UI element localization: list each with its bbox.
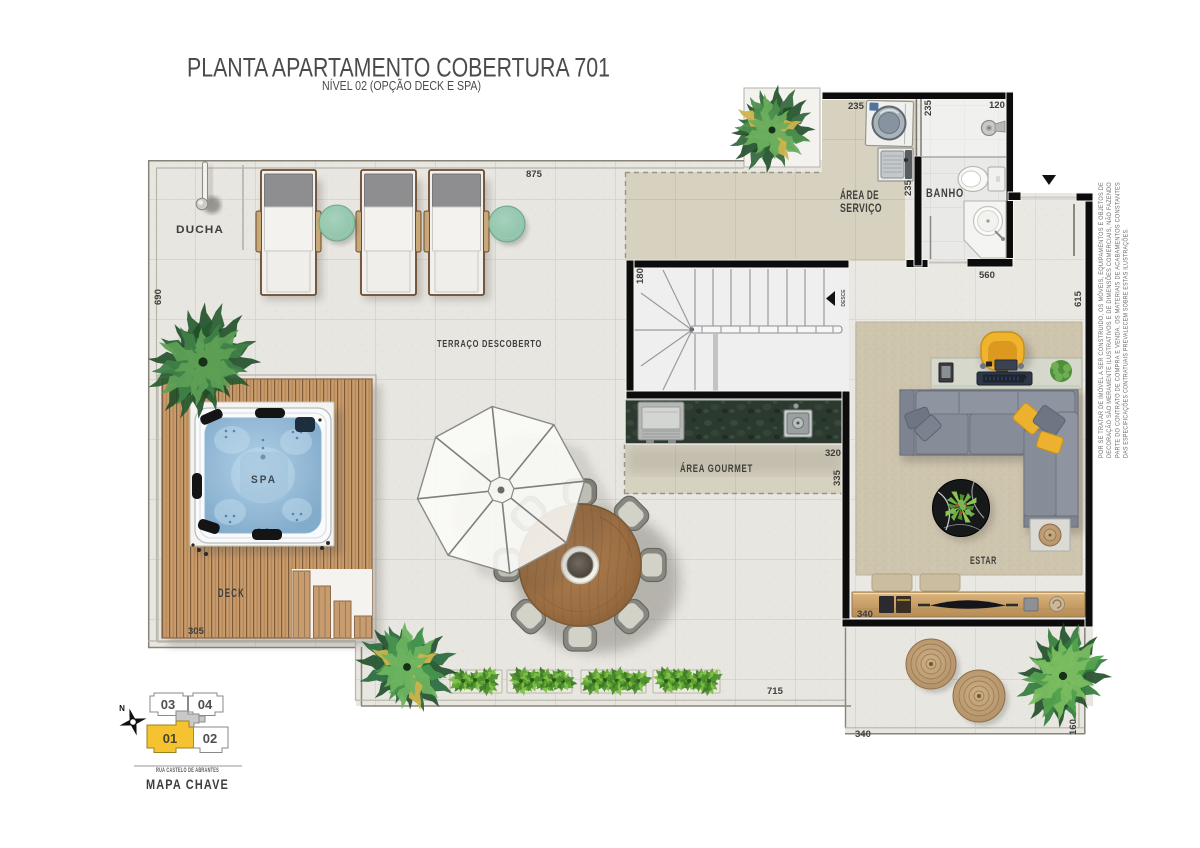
svg-text:03: 03: [161, 697, 175, 712]
svg-text:SERVIÇO: SERVIÇO: [840, 203, 882, 215]
svg-text:235: 235: [848, 101, 865, 112]
svg-text:560: 560: [979, 270, 995, 281]
svg-text:160: 160: [1068, 719, 1079, 735]
svg-text:690: 690: [153, 289, 164, 305]
svg-text:DECORAÇÃO SÃO MERAMENTE ILUSTR: DECORAÇÃO SÃO MERAMENTE ILUSTRATIVOS E D…: [1104, 182, 1113, 458]
svg-text:305: 305: [188, 626, 205, 637]
svg-text:320: 320: [825, 448, 841, 459]
svg-text:TERRAÇO DESCOBERTO: TERRAÇO DESCOBERTO: [437, 338, 542, 350]
svg-text:340: 340: [855, 729, 871, 740]
svg-text:POR SE TRATAR DE IMÓVEL A SER: POR SE TRATAR DE IMÓVEL A SER CONSTRUIDO…: [1096, 182, 1105, 458]
svg-text:335: 335: [832, 469, 843, 486]
svg-text:235: 235: [923, 99, 934, 116]
svg-text:01: 01: [163, 731, 177, 746]
svg-text:PARTE DO CONTRATO DE COMPRA E: PARTE DO CONTRATO DE COMPRA E VENDA. OS …: [1114, 182, 1121, 458]
svg-text:ÁREA DE: ÁREA DE: [840, 189, 879, 202]
svg-text:DAS ESPECIFICAÇÕES CONTRATUAIS: DAS ESPECIFICAÇÕES CONTRATUAIS PREVALECE…: [1121, 228, 1130, 458]
svg-text:04: 04: [198, 697, 213, 712]
svg-text:SPA: SPA: [251, 474, 277, 486]
svg-text:RUA CASTELO DE ABRANTES: RUA CASTELO DE ABRANTES: [156, 768, 219, 774]
svg-text:120: 120: [989, 100, 1005, 111]
svg-text:NÍVEL 02 (OPÇÃO DECK E SPA): NÍVEL 02 (OPÇÃO DECK E SPA): [322, 78, 481, 93]
svg-text:715: 715: [767, 686, 784, 697]
svg-text:DUCHA: DUCHA: [176, 224, 224, 236]
svg-text:N: N: [119, 704, 125, 713]
svg-text:ÁREA GOURMET: ÁREA GOURMET: [680, 462, 753, 475]
svg-text:BANHO: BANHO: [926, 186, 964, 200]
svg-text:DECK: DECK: [218, 588, 245, 600]
svg-text:02: 02: [203, 731, 217, 746]
svg-text:MAPA CHAVE: MAPA CHAVE: [146, 776, 229, 792]
svg-text:875: 875: [526, 169, 543, 180]
svg-text:615: 615: [1073, 290, 1084, 307]
svg-text:PLANTA APARTAMENTO COBERTURA 7: PLANTA APARTAMENTO COBERTURA 701: [187, 53, 610, 83]
svg-text:340: 340: [857, 609, 873, 620]
svg-text:235: 235: [903, 179, 914, 196]
svg-text:DESCE: DESCE: [841, 289, 847, 307]
svg-text:ESTAR: ESTAR: [970, 555, 997, 567]
svg-text:180: 180: [635, 268, 646, 284]
